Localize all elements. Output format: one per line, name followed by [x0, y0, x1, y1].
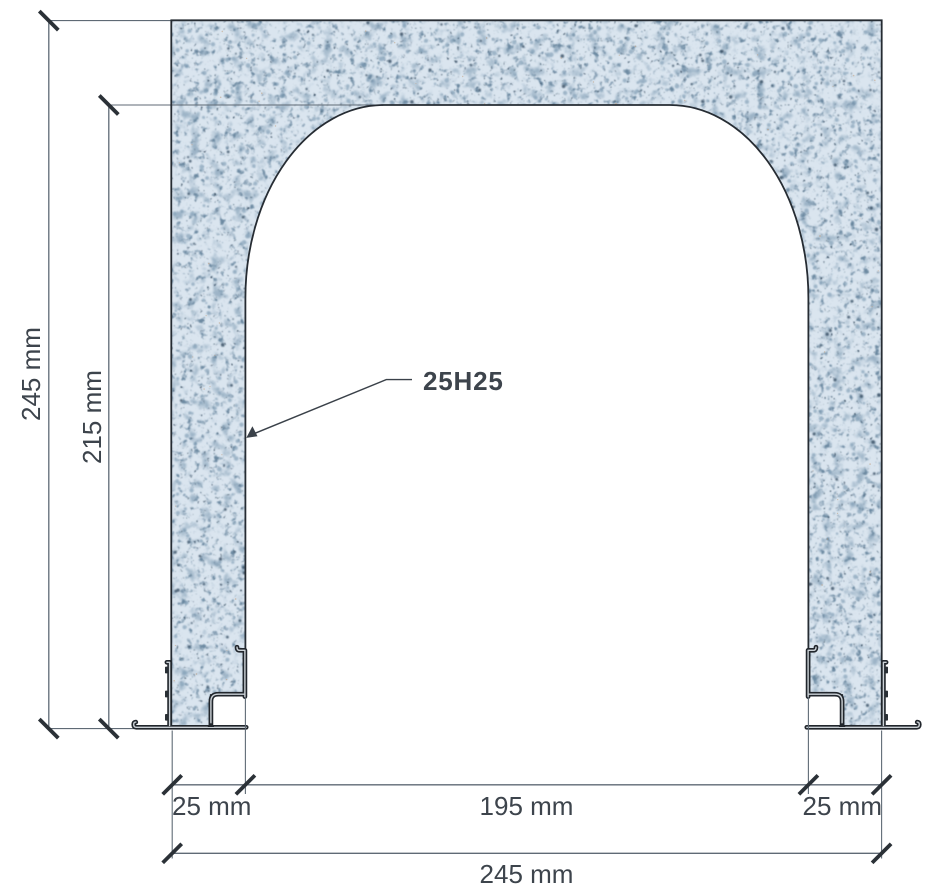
svg-text:25 mm: 25 mm [172, 791, 251, 821]
svg-text:25H25: 25H25 [423, 366, 504, 396]
svg-text:195 mm: 195 mm [480, 791, 574, 821]
svg-text:25 mm: 25 mm [803, 791, 882, 821]
svg-text:215 mm: 215 mm [77, 370, 107, 464]
svg-text:245 mm: 245 mm [16, 327, 46, 421]
svg-text:245 mm: 245 mm [480, 859, 574, 889]
